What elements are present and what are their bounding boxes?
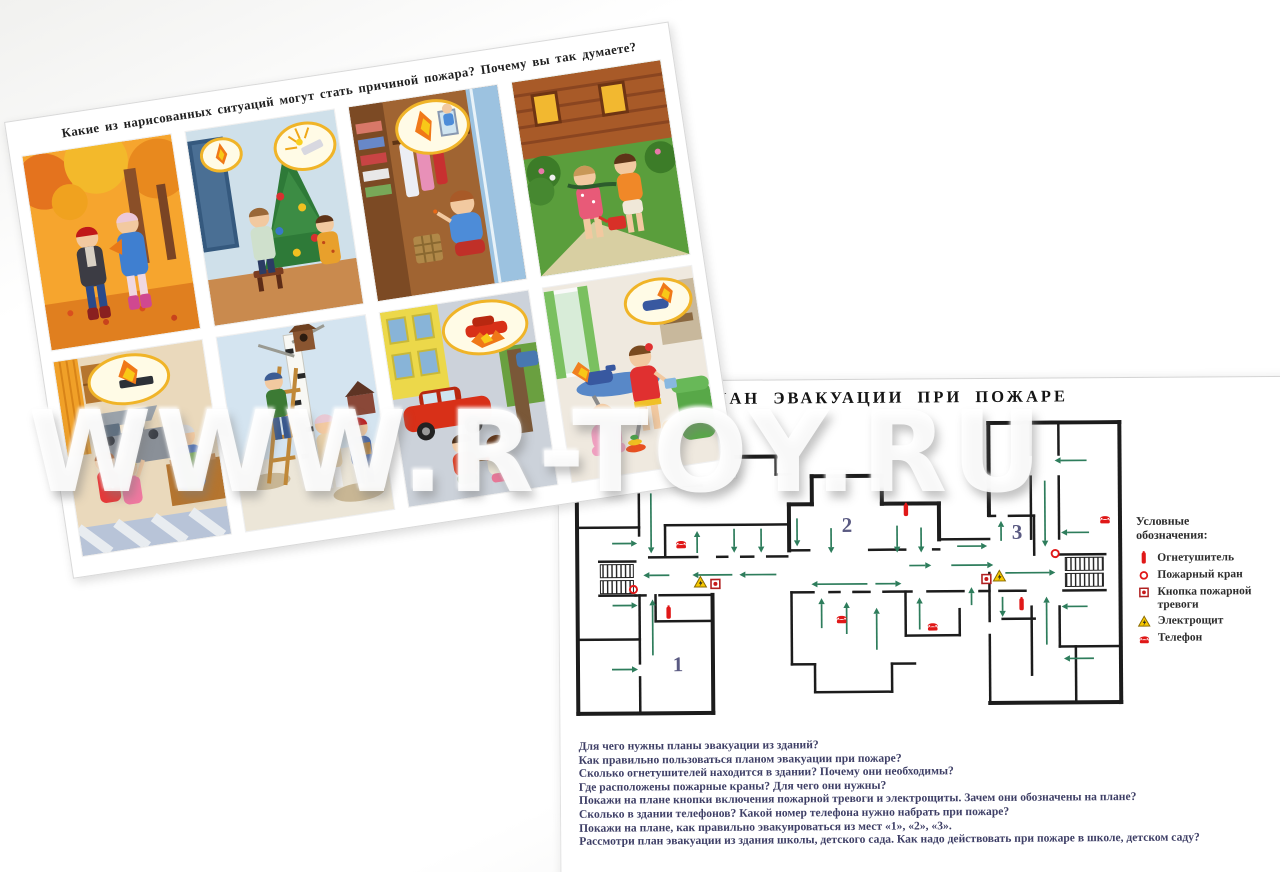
plan-symbol-phone-icon (1100, 516, 1110, 523)
photo-of-fire-safety-cards: { "watermark": { "text": "WWW.R-TOY.RU" … (0, 0, 1280, 872)
questions-list: Для чего нужны планы эвакуации из зданий… (579, 735, 1270, 849)
christmas-scene (186, 110, 364, 326)
car-scene (380, 291, 558, 507)
wardrobe-scene (349, 85, 527, 301)
illustration-garden-watering (512, 60, 690, 276)
plan-zone-numbers: 123 (672, 512, 1024, 676)
legend-item-label: Электрощит (1158, 615, 1224, 629)
plan-symbol-phone-icon (928, 623, 938, 630)
legend-item: Пожарный кран (1136, 568, 1280, 583)
legend-extinguisher-icon (1136, 551, 1151, 566)
plan-zone-number: 2 (842, 513, 853, 537)
legend-hydrant-icon (1136, 568, 1151, 583)
autumn-scene (22, 134, 200, 350)
plan-symbol-hydrant-icon (1052, 550, 1059, 557)
legend-phone-icon (1137, 631, 1152, 646)
legend-item: Телефон (1137, 631, 1280, 646)
legend-item: Кнопка пожарной тревоги (1136, 585, 1280, 612)
plan-zone-number: 3 (1012, 520, 1023, 544)
legend-alarm-button-icon (1136, 585, 1151, 600)
legend-electro-icon (1137, 614, 1152, 629)
legend-item: Огнетушитель (1136, 551, 1280, 566)
legend-item-label: Пожарный кран (1157, 568, 1242, 582)
plan-symbol-extinguisher-icon (666, 605, 670, 618)
plan-symbol-extinguisher-icon (1019, 597, 1023, 610)
plan-evacuation-arrows (611, 457, 1094, 673)
illustration-car-matches (380, 291, 558, 507)
illustration-birdhouse-winter (217, 315, 395, 531)
plan-symbol-electro-icon (694, 576, 706, 587)
legend-item-label: Огнетушитель (1157, 551, 1234, 565)
birdhouse-scene (217, 315, 395, 531)
illustration-iron-baby (543, 266, 721, 482)
plan-symbol-electro-icon (993, 570, 1005, 581)
illustration-autumn-leaves (22, 134, 200, 350)
legend-heading: Условные обозначения: (1136, 513, 1280, 543)
plan-symbol-phone-icon (837, 616, 847, 623)
illustration-christmas-tree (186, 110, 364, 326)
iron-scene (543, 266, 721, 482)
illustration-kitchen-stove (53, 340, 231, 556)
illustration-wardrobe-matches (349, 85, 527, 301)
garden-scene (512, 60, 690, 276)
legend-items: ОгнетушительПожарный кранКнопка пожарной… (1136, 551, 1280, 646)
plan-symbols (629, 501, 1110, 632)
plan-zone-number: 1 (673, 652, 684, 676)
plan-symbol-alarm-button-icon (711, 579, 720, 588)
plan-symbol-phone-icon (676, 541, 686, 548)
plan-symbol-alarm-button-icon (982, 575, 991, 584)
legend-item-label: Телефон (1158, 632, 1202, 646)
kitchen-scene (53, 340, 231, 556)
plan-legend: Условные обозначения: ОгнетушительПожарн… (1136, 513, 1280, 649)
plan-symbol-extinguisher-icon (904, 503, 908, 516)
legend-item: Электрощит (1137, 614, 1280, 629)
legend-item-label: Кнопка пожарной тревоги (1157, 585, 1280, 612)
plan-stairs (600, 557, 1103, 594)
